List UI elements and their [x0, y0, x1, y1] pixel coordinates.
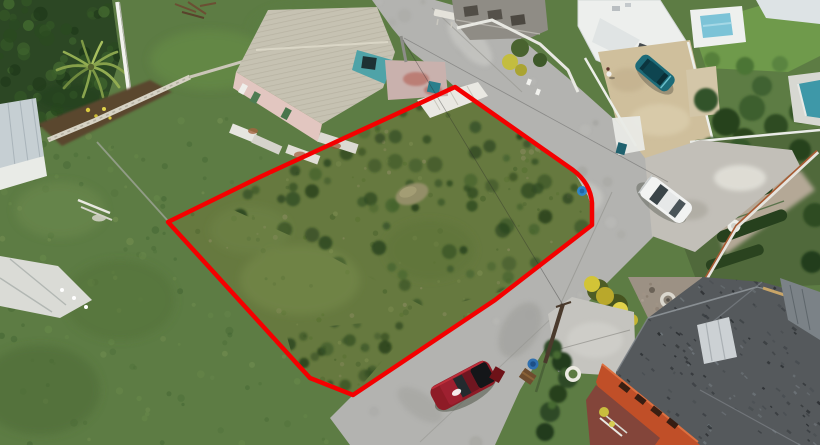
lot-patch	[240, 245, 360, 315]
texture-speck	[60, 23, 72, 35]
texture-speck	[617, 230, 626, 239]
texture-speck	[485, 179, 498, 192]
texture-speck	[522, 167, 528, 173]
texture-speck	[375, 133, 385, 143]
texture-speck	[447, 265, 454, 272]
tree	[694, 88, 718, 112]
fence-post	[84, 305, 88, 309]
texture-speck	[403, 162, 407, 166]
texture-speck	[655, 303, 658, 306]
texture-speck	[162, 163, 168, 169]
texture-speck	[289, 183, 298, 192]
texture-speck	[437, 280, 440, 283]
texture-speck	[340, 362, 344, 366]
texture-speck	[580, 211, 582, 213]
texture-speck	[649, 283, 652, 286]
texture-speck	[537, 174, 552, 189]
texture-speck	[296, 324, 298, 326]
texture-speck	[355, 217, 360, 222]
texture-speck	[466, 270, 475, 279]
texture-speck	[178, 343, 181, 346]
texture-speck	[563, 193, 574, 204]
white-debris	[92, 215, 106, 222]
texture-speck	[145, 412, 150, 417]
texture-speck	[40, 255, 47, 262]
texture-speck	[124, 185, 127, 188]
texture-speck	[134, 154, 138, 158]
texture-speck	[336, 161, 342, 167]
texture-speck	[422, 160, 426, 164]
texture-speck	[477, 270, 483, 276]
table-leg	[451, 22, 452, 28]
texture-speck	[525, 159, 529, 163]
texture-speck	[470, 121, 482, 133]
texture-speck	[556, 192, 559, 195]
texture-speck	[46, 70, 57, 81]
texture-speck	[372, 241, 387, 256]
texture-speck	[108, 339, 114, 345]
texture-speck	[578, 292, 584, 298]
texture-speck	[98, 6, 109, 17]
texture-speck	[418, 176, 422, 180]
texture-speck	[374, 333, 381, 340]
texture-speck	[605, 217, 616, 228]
apron-light	[567, 322, 623, 358]
texture-speck	[126, 238, 134, 246]
window-opening	[510, 14, 525, 26]
gable-opening	[361, 56, 377, 70]
texture-speck	[111, 146, 114, 149]
texture-speck	[321, 313, 324, 316]
texture-speck	[480, 196, 486, 202]
garden-shrub	[533, 53, 547, 67]
texture-speck	[447, 180, 453, 186]
texture-speck	[286, 178, 289, 181]
texture-speck	[303, 414, 307, 418]
texture-speck	[459, 246, 467, 254]
texture-speck	[517, 204, 524, 211]
lawn-patch	[15, 182, 105, 238]
driveway-gate-structure	[612, 116, 645, 155]
texture-speck	[123, 247, 127, 251]
texture-speck	[549, 196, 553, 200]
texture-speck	[107, 167, 113, 173]
texture-speck	[443, 312, 447, 316]
window-opening	[463, 5, 478, 17]
texture-speck	[324, 439, 329, 444]
texture-speck	[323, 159, 331, 167]
texture-speck	[529, 224, 540, 235]
yellow-bush	[515, 64, 527, 76]
texture-speck	[177, 394, 184, 401]
texture-speck	[350, 313, 355, 318]
texture-speck	[63, 161, 71, 169]
texture-speck	[521, 156, 526, 161]
texture-speck	[383, 222, 391, 230]
texture-speck	[442, 244, 457, 259]
texture-speck	[202, 157, 208, 163]
texture-speck	[195, 229, 200, 234]
texture-speck	[286, 186, 290, 190]
texture-speck	[174, 257, 177, 260]
texture-speck	[507, 248, 510, 251]
texture-speck	[286, 192, 301, 207]
texture-speck	[538, 210, 552, 224]
concrete-structure	[452, 0, 548, 40]
blue-barrel-2-top	[580, 189, 585, 194]
texture-speck	[399, 279, 411, 291]
texture-speck	[526, 177, 529, 180]
texture-speck	[398, 270, 408, 280]
hedge	[536, 423, 554, 441]
texture-speck	[17, 42, 30, 55]
texture-speck	[208, 313, 214, 319]
fountain-center	[666, 298, 670, 302]
texture-speck	[320, 342, 333, 355]
texture-speck	[428, 193, 433, 198]
texture-speck	[657, 280, 661, 284]
texture-speck	[202, 191, 205, 194]
texture-speck	[388, 306, 394, 312]
blue-barrel-top	[530, 361, 536, 367]
texture-speck	[334, 359, 336, 361]
texture-speck	[9, 19, 20, 30]
texture-speck	[438, 199, 445, 206]
person-shadow	[609, 77, 615, 79]
texture-speck	[357, 185, 360, 188]
texture-speck	[145, 407, 150, 412]
texture-speck	[100, 351, 106, 357]
yellow-flower	[102, 107, 106, 111]
texture-speck	[646, 295, 649, 298]
texture-speck	[344, 334, 356, 346]
bird-bath-center	[569, 370, 578, 379]
texture-speck	[502, 256, 516, 270]
rust-stain	[248, 128, 258, 134]
pool-deck	[690, 6, 746, 48]
texture-speck	[107, 46, 113, 52]
texture-speck	[22, 7, 29, 14]
texture-speck	[21, 323, 25, 327]
texture-speck	[509, 173, 518, 182]
texture-speck	[53, 154, 59, 160]
texture-speck	[487, 262, 496, 271]
texture-speck	[361, 343, 370, 352]
texture-speck	[249, 362, 255, 368]
shrub	[772, 56, 788, 72]
texture-speck	[163, 232, 166, 235]
texture-speck	[160, 336, 166, 342]
texture-speck	[0, 77, 11, 88]
shrub	[704, 52, 720, 68]
texture-speck	[603, 177, 613, 187]
texture-speck	[224, 311, 231, 318]
texture-speck	[160, 204, 165, 209]
texture-speck	[403, 309, 409, 315]
texture-speck	[309, 336, 312, 339]
texture-speck	[167, 391, 172, 396]
texture-speck	[403, 303, 407, 307]
texture-speck	[369, 203, 379, 213]
texture-speck	[23, 20, 34, 31]
texture-speck	[87, 156, 90, 159]
gravel-white-patch	[714, 165, 766, 191]
fence-post	[60, 288, 64, 292]
texture-speck	[338, 341, 342, 345]
texture-speck	[379, 341, 392, 354]
texture-speck	[333, 211, 338, 216]
texture-speck	[277, 195, 285, 203]
texture-speck	[3, 29, 17, 43]
texture-speck	[177, 117, 184, 124]
texture-speck	[305, 184, 319, 198]
texture-speck	[33, 7, 47, 21]
texture-speck	[641, 299, 644, 302]
planter	[649, 287, 655, 293]
texture-speck	[387, 171, 391, 175]
aerial-photo	[0, 0, 820, 445]
texture-speck	[316, 317, 321, 322]
texture-speck	[282, 355, 286, 359]
texture-speck	[74, 153, 79, 158]
yellow-plant	[609, 421, 615, 427]
texture-speck	[60, 55, 68, 63]
texture-speck	[227, 333, 232, 338]
texture-speck	[258, 382, 261, 385]
texture-speck	[65, 335, 69, 339]
texture-speck	[116, 387, 123, 394]
texture-speck	[243, 189, 253, 199]
texture-speck	[339, 375, 342, 378]
texture-speck	[209, 239, 212, 242]
tree	[739, 95, 765, 121]
bird-bath	[565, 366, 581, 382]
texture-speck	[427, 157, 443, 173]
texture-speck	[343, 237, 345, 239]
yellow-flower	[108, 116, 111, 119]
person-body	[606, 71, 611, 76]
yellow-plant	[599, 407, 609, 417]
texture-speck	[259, 156, 262, 159]
texture-speck	[177, 288, 183, 294]
texture-speck	[88, 11, 94, 17]
texture-speck	[324, 177, 331, 184]
texture-speck	[493, 318, 500, 325]
texture-speck	[457, 279, 461, 283]
texture-speck	[218, 427, 224, 433]
texture-speck	[69, 37, 77, 45]
texture-speck	[357, 383, 359, 385]
texture-speck	[420, 287, 422, 289]
texture-speck	[483, 140, 496, 153]
shrub	[736, 57, 754, 75]
texture-speck	[113, 217, 119, 223]
texture-speck	[408, 305, 412, 309]
texture-speck	[381, 333, 390, 342]
red-stain	[403, 72, 429, 86]
texture-speck	[136, 396, 141, 401]
texture-speck	[83, 421, 87, 425]
palm-crown	[88, 64, 94, 70]
texture-speck	[146, 236, 150, 240]
hedge-highlight	[553, 351, 561, 359]
texture-speck	[373, 231, 378, 236]
texture-speck	[395, 322, 403, 330]
texture-speck	[299, 332, 308, 341]
texture-speck	[411, 204, 419, 212]
texture-speck	[110, 349, 117, 356]
texture-speck	[309, 168, 322, 181]
texture-speck	[9, 64, 20, 75]
texture-speck	[8, 202, 11, 205]
texture-speck	[389, 130, 402, 143]
texture-speck	[54, 174, 58, 178]
texture-speck	[466, 200, 477, 211]
texture-speck	[497, 281, 500, 284]
texture-speck	[11, 336, 18, 343]
texture-speck	[187, 141, 193, 147]
texture-speck	[383, 148, 386, 151]
texture-speck	[409, 142, 413, 146]
texture-speck	[203, 176, 207, 180]
texture-speck	[464, 174, 477, 187]
texture-speck	[384, 130, 388, 134]
texture-speck	[139, 252, 147, 260]
texture-speck	[222, 351, 228, 357]
yellow-bush	[584, 276, 600, 292]
texture-speck	[225, 117, 229, 121]
texture-speck	[181, 403, 184, 406]
texture-speck	[513, 167, 517, 171]
texture-speck	[305, 228, 320, 243]
texture-speck	[153, 250, 157, 254]
texture-speck	[230, 180, 234, 184]
fence-post	[72, 296, 76, 300]
garden-shrub	[511, 39, 529, 57]
texture-speck	[593, 120, 599, 126]
aerial-photo-container	[0, 0, 820, 445]
texture-speck	[217, 118, 223, 124]
texture-speck	[319, 236, 333, 250]
texture-speck	[364, 167, 367, 170]
texture-speck	[111, 189, 119, 197]
hedge-highlight	[548, 401, 556, 409]
texture-speck	[264, 417, 269, 422]
texture-speck	[342, 354, 346, 358]
texture-speck	[192, 303, 196, 307]
unfinished-building	[452, 0, 548, 40]
texture-speck	[1, 189, 8, 196]
texture-speck	[496, 248, 498, 250]
texture-speck	[32, 77, 46, 91]
texture-speck	[503, 155, 510, 162]
texture-speck	[523, 202, 527, 206]
texture-speck	[161, 196, 167, 202]
texture-speck	[642, 293, 645, 296]
texture-speck	[362, 178, 366, 182]
texture-speck	[141, 158, 145, 162]
texture-speck	[409, 159, 423, 173]
texture-speck	[383, 289, 388, 294]
yellow-bush	[596, 287, 614, 305]
texture-speck	[356, 362, 361, 367]
texture-speck	[502, 271, 514, 283]
texture-speck	[435, 179, 443, 187]
texture-speck	[358, 148, 366, 156]
texture-speck	[467, 187, 478, 198]
roof-unit	[625, 3, 631, 7]
texture-speck	[369, 406, 379, 416]
texture-speck	[387, 154, 402, 169]
texture-speck	[27, 85, 33, 91]
texture-speck	[39, 31, 54, 46]
hedge	[549, 385, 567, 403]
texture-speck	[160, 440, 165, 445]
texture-speck	[518, 225, 520, 227]
texture-speck	[173, 277, 177, 281]
texture-speck	[537, 208, 540, 211]
texture-speck	[529, 149, 534, 154]
texture-speck	[133, 366, 137, 370]
tree	[752, 76, 772, 96]
yellow-flower	[86, 108, 90, 112]
texture-speck	[508, 188, 510, 190]
texture-speck	[152, 226, 160, 234]
texture-speck	[154, 195, 160, 201]
roof-unit	[612, 6, 620, 11]
texture-speck	[368, 159, 382, 173]
texture-speck	[222, 340, 227, 345]
texture-speck	[245, 385, 250, 390]
texture-speck	[579, 124, 591, 136]
texture-speck	[294, 378, 301, 385]
texture-speck	[398, 9, 412, 23]
texture-speck	[520, 149, 526, 155]
texture-speck	[423, 135, 432, 144]
texture-speck	[504, 177, 510, 183]
texture-speck	[45, 326, 53, 334]
texture-speck	[533, 159, 539, 165]
texture-speck	[495, 223, 510, 238]
texture-speck	[197, 370, 205, 378]
person-head	[606, 67, 609, 70]
table-leg	[437, 19, 438, 25]
texture-speck	[550, 241, 553, 244]
texture-speck	[352, 176, 354, 178]
texture-speck	[210, 376, 215, 381]
texture-speck	[284, 420, 291, 427]
texture-speck	[87, 438, 91, 442]
texture-speck	[365, 358, 369, 362]
texture-speck	[387, 263, 396, 272]
texture-speck	[290, 165, 301, 176]
